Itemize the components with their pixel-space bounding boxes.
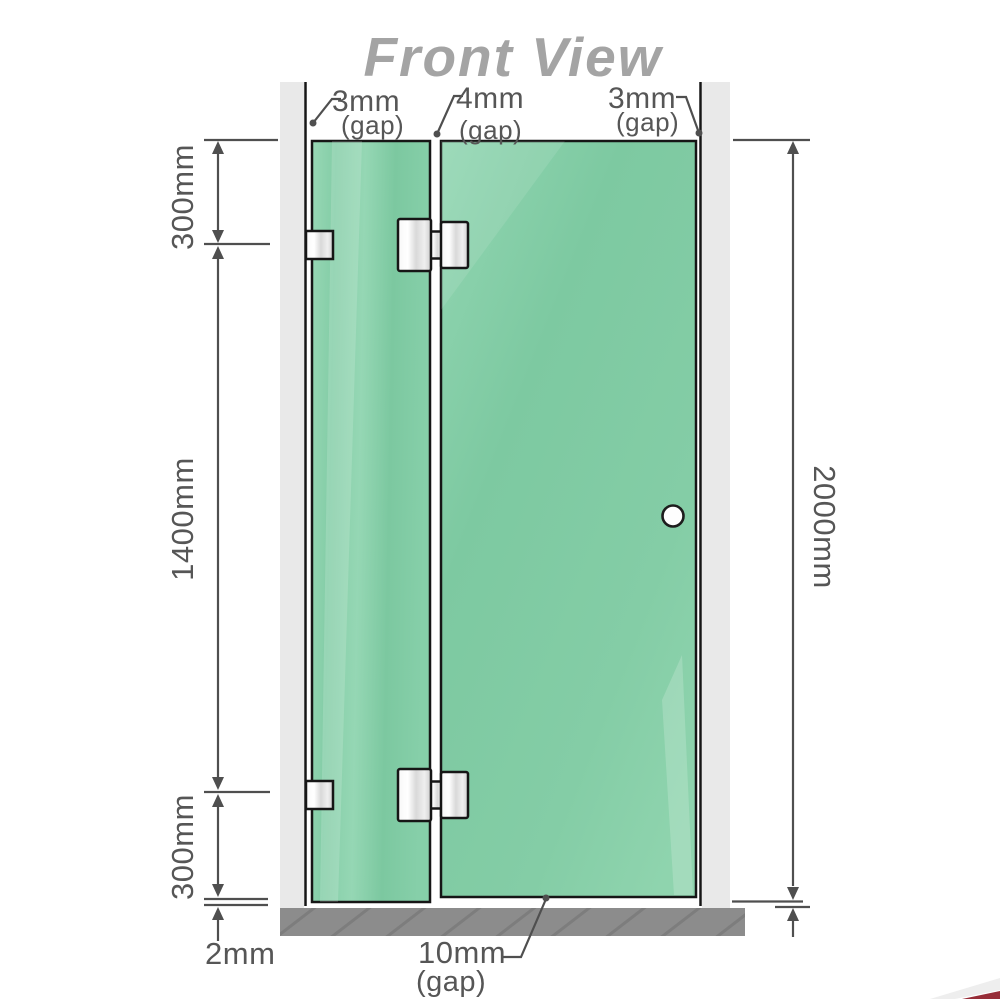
dimension-right: [732, 140, 810, 937]
gap-note-bottom: (gap): [416, 966, 486, 998]
right-wall: [701, 82, 731, 908]
diagram-title: Front View: [363, 26, 663, 88]
left-wall: [280, 82, 306, 908]
dim-label-bottom-300: 300mm: [165, 794, 200, 900]
glass-hinge-bottom: [398, 769, 468, 821]
gap-note-right: (gap): [616, 107, 679, 137]
glass-hinge-top: [398, 219, 468, 271]
gap-label-middle: 4mm: [456, 82, 524, 115]
dim-label-1400: 1400mm: [165, 457, 200, 581]
dim-label-10mm: 10mm: [418, 935, 506, 970]
corner-logo-fragment: [930, 978, 1000, 999]
door-handle: [663, 506, 684, 527]
leader-gap-right: [676, 97, 703, 137]
dim-label-2mm: 2mm: [205, 936, 275, 971]
dimension-left: [204, 140, 278, 941]
wall-bracket-top: [306, 231, 333, 259]
dim-label-2000: 2000mm: [807, 465, 842, 589]
dim-label-top-300: 300mm: [165, 144, 200, 250]
gap-note-left: (gap): [341, 110, 404, 140]
wall-bracket-bottom: [306, 781, 333, 809]
front-view-diagram: Front View 3mm (gap) 4mm (gap) 3mm (gap)…: [0, 0, 1000, 1000]
shower-floor: [270, 902, 762, 942]
door-glass-panel: [441, 141, 696, 897]
gap-note-middle: (gap): [459, 115, 522, 145]
